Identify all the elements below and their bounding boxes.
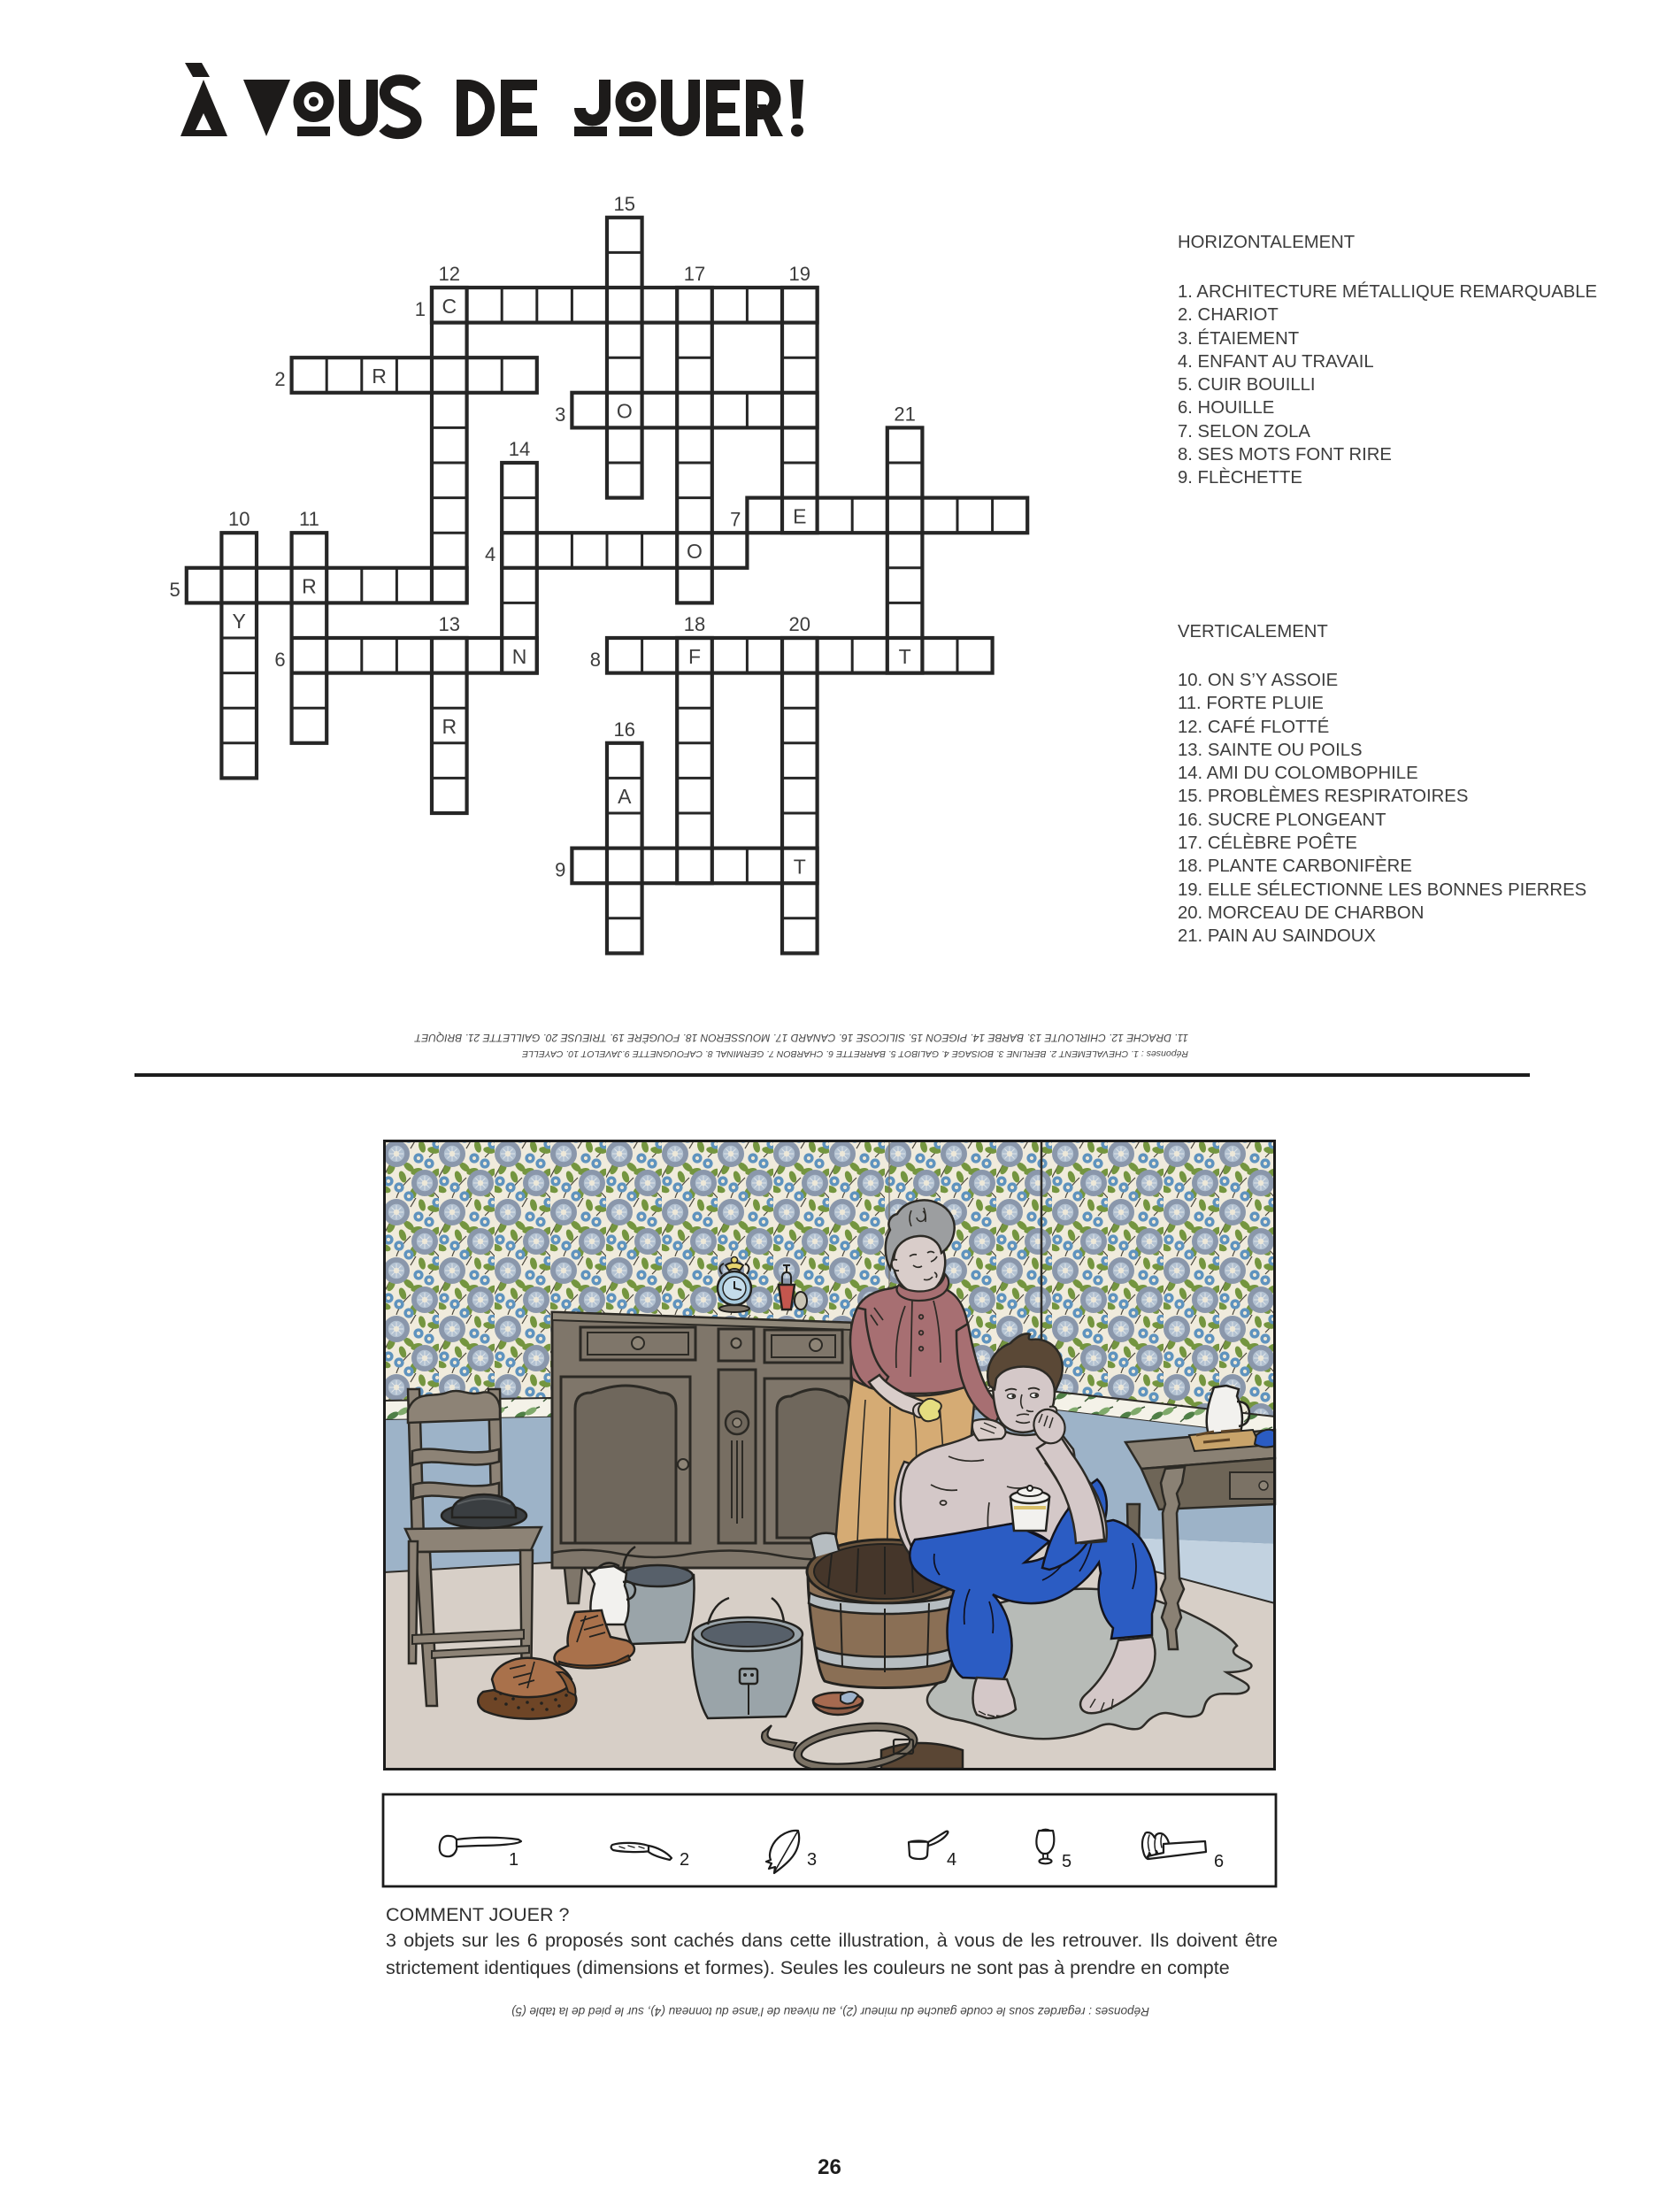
svg-text:T: T: [899, 645, 911, 668]
svg-text:15: 15: [614, 193, 635, 215]
svg-text:E: E: [793, 504, 806, 527]
svg-text:4: 4: [485, 543, 495, 565]
svg-text:Y: Y: [233, 610, 246, 633]
svg-text:8: 8: [590, 649, 601, 671]
svg-text:18: 18: [684, 613, 705, 635]
svg-text:1: 1: [415, 298, 426, 320]
svg-text:O: O: [617, 400, 633, 423]
svg-text:2: 2: [680, 1850, 689, 1870]
svg-text:C: C: [442, 295, 457, 318]
svg-text:14: 14: [509, 438, 530, 460]
svg-text:9: 9: [555, 859, 565, 881]
svg-text:6: 6: [1214, 1852, 1224, 1871]
svg-text:F: F: [688, 645, 701, 668]
svg-text:10: 10: [228, 508, 250, 530]
svg-text:12: 12: [439, 263, 460, 285]
svg-text:3: 3: [807, 1850, 817, 1870]
svg-text:5: 5: [1062, 1852, 1071, 1871]
svg-text:21: 21: [894, 403, 915, 425]
svg-text:1: 1: [509, 1850, 518, 1870]
svg-text:O: O: [687, 540, 703, 563]
svg-text:11: 11: [299, 508, 319, 530]
svg-text:R: R: [302, 575, 317, 598]
svg-text:7: 7: [730, 509, 741, 531]
svg-text:5: 5: [170, 579, 180, 601]
svg-text:R: R: [442, 715, 457, 738]
svg-text:4: 4: [947, 1850, 956, 1870]
svg-text:19: 19: [789, 263, 810, 285]
svg-text:17: 17: [684, 263, 705, 285]
svg-text:A: A: [618, 785, 632, 808]
svg-text:R: R: [372, 365, 387, 388]
svg-text:16: 16: [614, 718, 635, 741]
svg-text:13: 13: [439, 613, 460, 635]
svg-text:3: 3: [555, 403, 565, 426]
svg-text:T: T: [794, 855, 806, 878]
svg-text:20: 20: [789, 613, 810, 635]
svg-text:N: N: [512, 645, 527, 668]
svg-text:6: 6: [274, 649, 285, 671]
svg-text:2: 2: [274, 368, 285, 390]
